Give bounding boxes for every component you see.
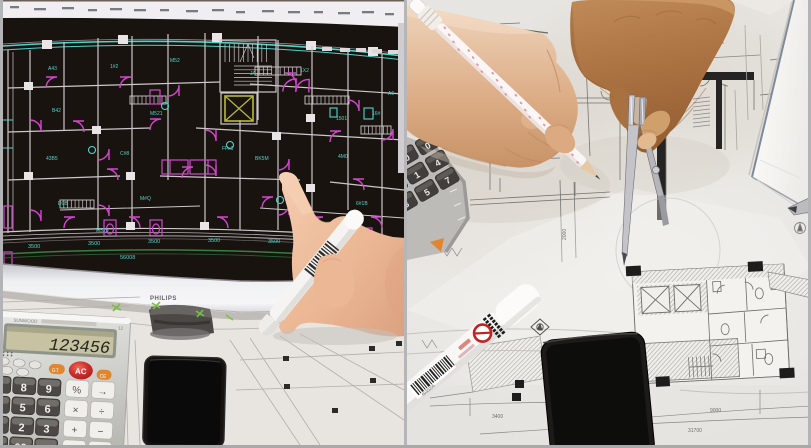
svg-text:GT: GT bbox=[52, 368, 59, 374]
svg-text:CE: CE bbox=[99, 373, 107, 379]
svg-text:1501: 1501 bbox=[336, 116, 347, 122]
svg-text:−: − bbox=[97, 426, 104, 437]
svg-text:3500: 3500 bbox=[28, 244, 40, 250]
svg-text:3500: 3500 bbox=[88, 241, 100, 247]
svg-text:3500: 3500 bbox=[148, 239, 160, 245]
svg-text:C#8: C#8 bbox=[120, 151, 129, 157]
svg-text:B42: B42 bbox=[52, 108, 61, 114]
svg-text:3500: 3500 bbox=[208, 238, 220, 244]
svg-text:8: 8 bbox=[20, 382, 27, 394]
svg-text:A6: A6 bbox=[388, 91, 394, 97]
svg-text:9000: 9000 bbox=[710, 408, 721, 414]
svg-text:123456: 123456 bbox=[48, 337, 110, 359]
svg-text:43B5: 43B5 bbox=[46, 156, 58, 162]
svg-text:M525: M525 bbox=[96, 228, 109, 234]
svg-text:9: 9 bbox=[45, 384, 52, 396]
svg-text:PHILIPS: PHILIPS bbox=[150, 296, 177, 302]
svg-text:+: + bbox=[71, 425, 78, 436]
svg-text:5: 5 bbox=[19, 402, 26, 414]
svg-text:%: % bbox=[72, 385, 82, 396]
svg-text:31700: 31700 bbox=[688, 428, 702, 434]
svg-text:M52: M52 bbox=[170, 58, 180, 64]
svg-text:2: 2 bbox=[18, 422, 25, 434]
svg-text:M#Q: M#Q bbox=[140, 196, 151, 202]
svg-text:3: 3 bbox=[43, 423, 50, 435]
svg-text:3500: 3500 bbox=[268, 239, 280, 245]
svg-text:AC: AC bbox=[75, 367, 87, 377]
svg-text:56008: 56008 bbox=[120, 255, 135, 261]
svg-text:12: 12 bbox=[118, 325, 124, 330]
svg-text:A43: A43 bbox=[48, 66, 57, 72]
svg-text:JA: JA bbox=[250, 71, 257, 77]
svg-text:6#1B: 6#1B bbox=[356, 201, 368, 207]
svg-text:M521: M521 bbox=[150, 111, 163, 117]
svg-text:16#: 16# bbox=[372, 111, 381, 117]
svg-text:×: × bbox=[72, 405, 79, 416]
svg-text:2000: 2000 bbox=[562, 229, 568, 240]
svg-text:BK5M: BK5M bbox=[255, 156, 269, 162]
svg-text:6: 6 bbox=[44, 403, 51, 415]
svg-text:D9B: D9B bbox=[58, 201, 68, 207]
svg-text:1#2: 1#2 bbox=[110, 64, 119, 70]
svg-text:FFx1: FFx1 bbox=[222, 146, 234, 152]
svg-text:1X2: 1X2 bbox=[300, 68, 309, 74]
svg-text:4M0: 4M0 bbox=[338, 154, 348, 160]
svg-text:→: → bbox=[97, 386, 108, 398]
svg-text:3400: 3400 bbox=[492, 414, 503, 420]
